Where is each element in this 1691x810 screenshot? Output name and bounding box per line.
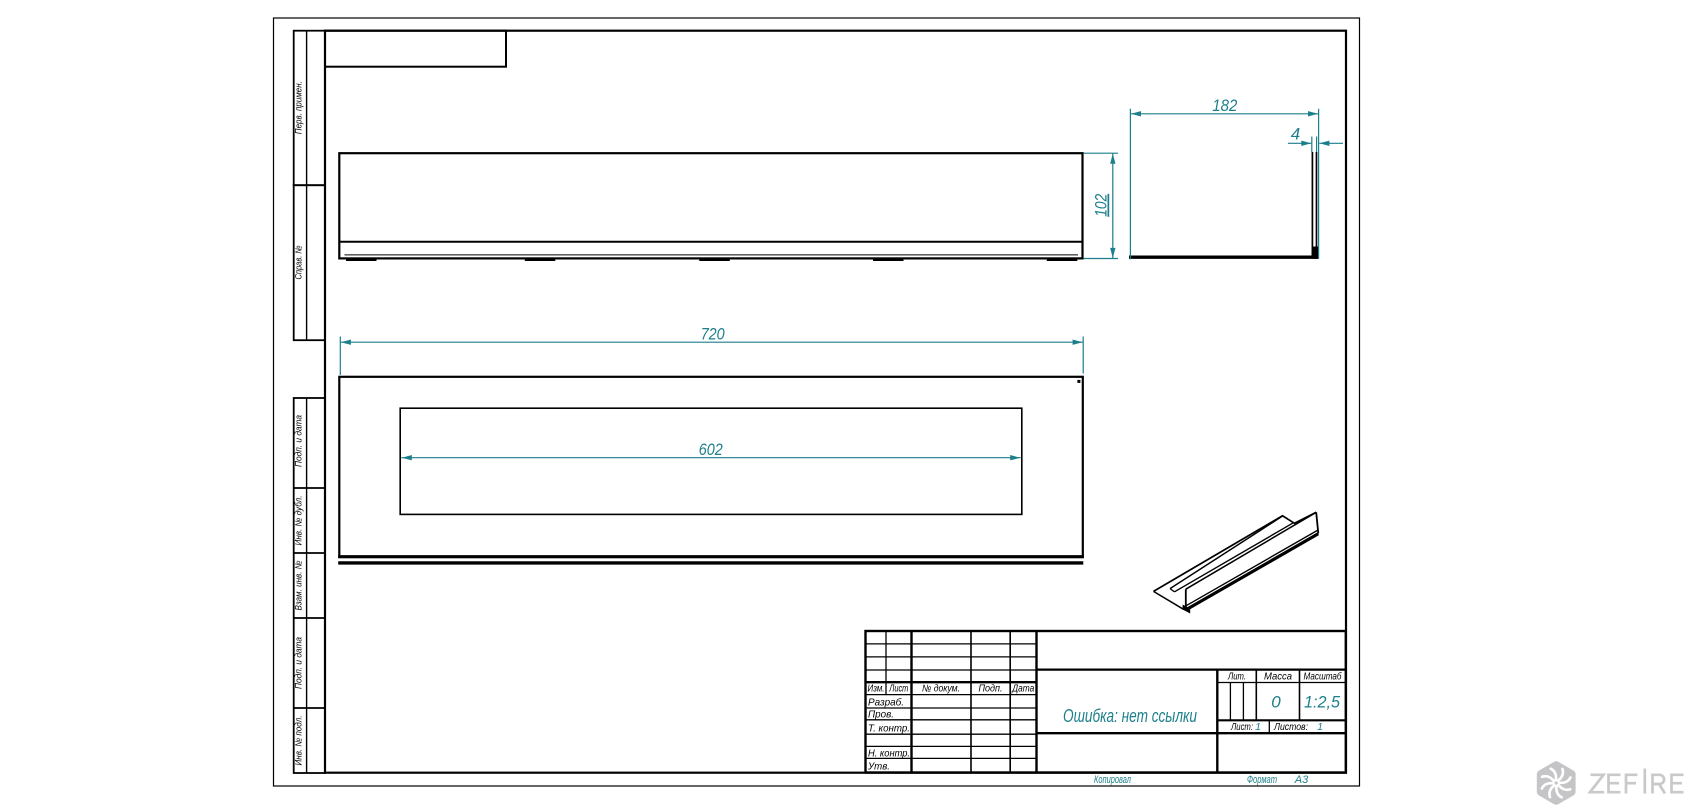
svg-text:Формат: Формат (1247, 774, 1277, 786)
svg-text:Подп. и дата: Подп. и дата (294, 415, 304, 467)
svg-text:4: 4 (1291, 125, 1300, 144)
svg-text:А3: А3 (1294, 774, 1309, 786)
svg-text:1:2,5: 1:2,5 (1304, 693, 1341, 712)
svg-text:Лист: Лист (889, 684, 909, 695)
svg-text:Инв. № подл.: Инв. № подл. (294, 716, 304, 766)
svg-text:Масса: Масса (1264, 672, 1293, 683)
svg-text:102: 102 (1092, 193, 1111, 216)
svg-text:Масштаб: Масштаб (1304, 672, 1342, 683)
svg-text:Лист:: Лист: (1230, 722, 1253, 733)
svg-text:1: 1 (1317, 721, 1323, 733)
svg-text:182: 182 (1212, 96, 1237, 115)
svg-text:Ошибка: нет ссылки: Ошибка: нет ссылки (1063, 705, 1197, 726)
svg-text:№ докум.: № докум. (922, 684, 960, 695)
svg-text:Изм.: Изм. (868, 684, 885, 695)
svg-text:720: 720 (701, 325, 725, 344)
svg-text:1: 1 (1255, 721, 1261, 733)
svg-text:Листов:: Листов: (1273, 722, 1308, 733)
svg-text:Дата: Дата (1011, 684, 1034, 695)
svg-text:Подп. и дата: Подп. и дата (294, 637, 304, 689)
svg-text:Копировал: Копировал (1094, 774, 1131, 786)
svg-text:Лит.: Лит. (1227, 672, 1246, 683)
svg-text:0: 0 (1271, 693, 1281, 712)
svg-text:Пров.: Пров. (868, 710, 894, 721)
svg-text:Подп.: Подп. (979, 684, 1003, 695)
svg-text:Взам. инв. №: Взам. инв. № (294, 560, 304, 610)
svg-text:Перв. примен.: Перв. примен. (294, 81, 304, 134)
svg-text:Разраб.: Разраб. (868, 697, 904, 709)
svg-text:Инв. № дубл.: Инв. № дубл. (294, 496, 304, 546)
svg-text:Н. контр.: Н. контр. (868, 748, 910, 759)
svg-text:Утв.: Утв. (867, 762, 890, 773)
svg-text:Справ. №: Справ. № (294, 245, 304, 279)
svg-text:602: 602 (699, 440, 723, 459)
svg-text:Т. контр.: Т. контр. (868, 724, 910, 735)
